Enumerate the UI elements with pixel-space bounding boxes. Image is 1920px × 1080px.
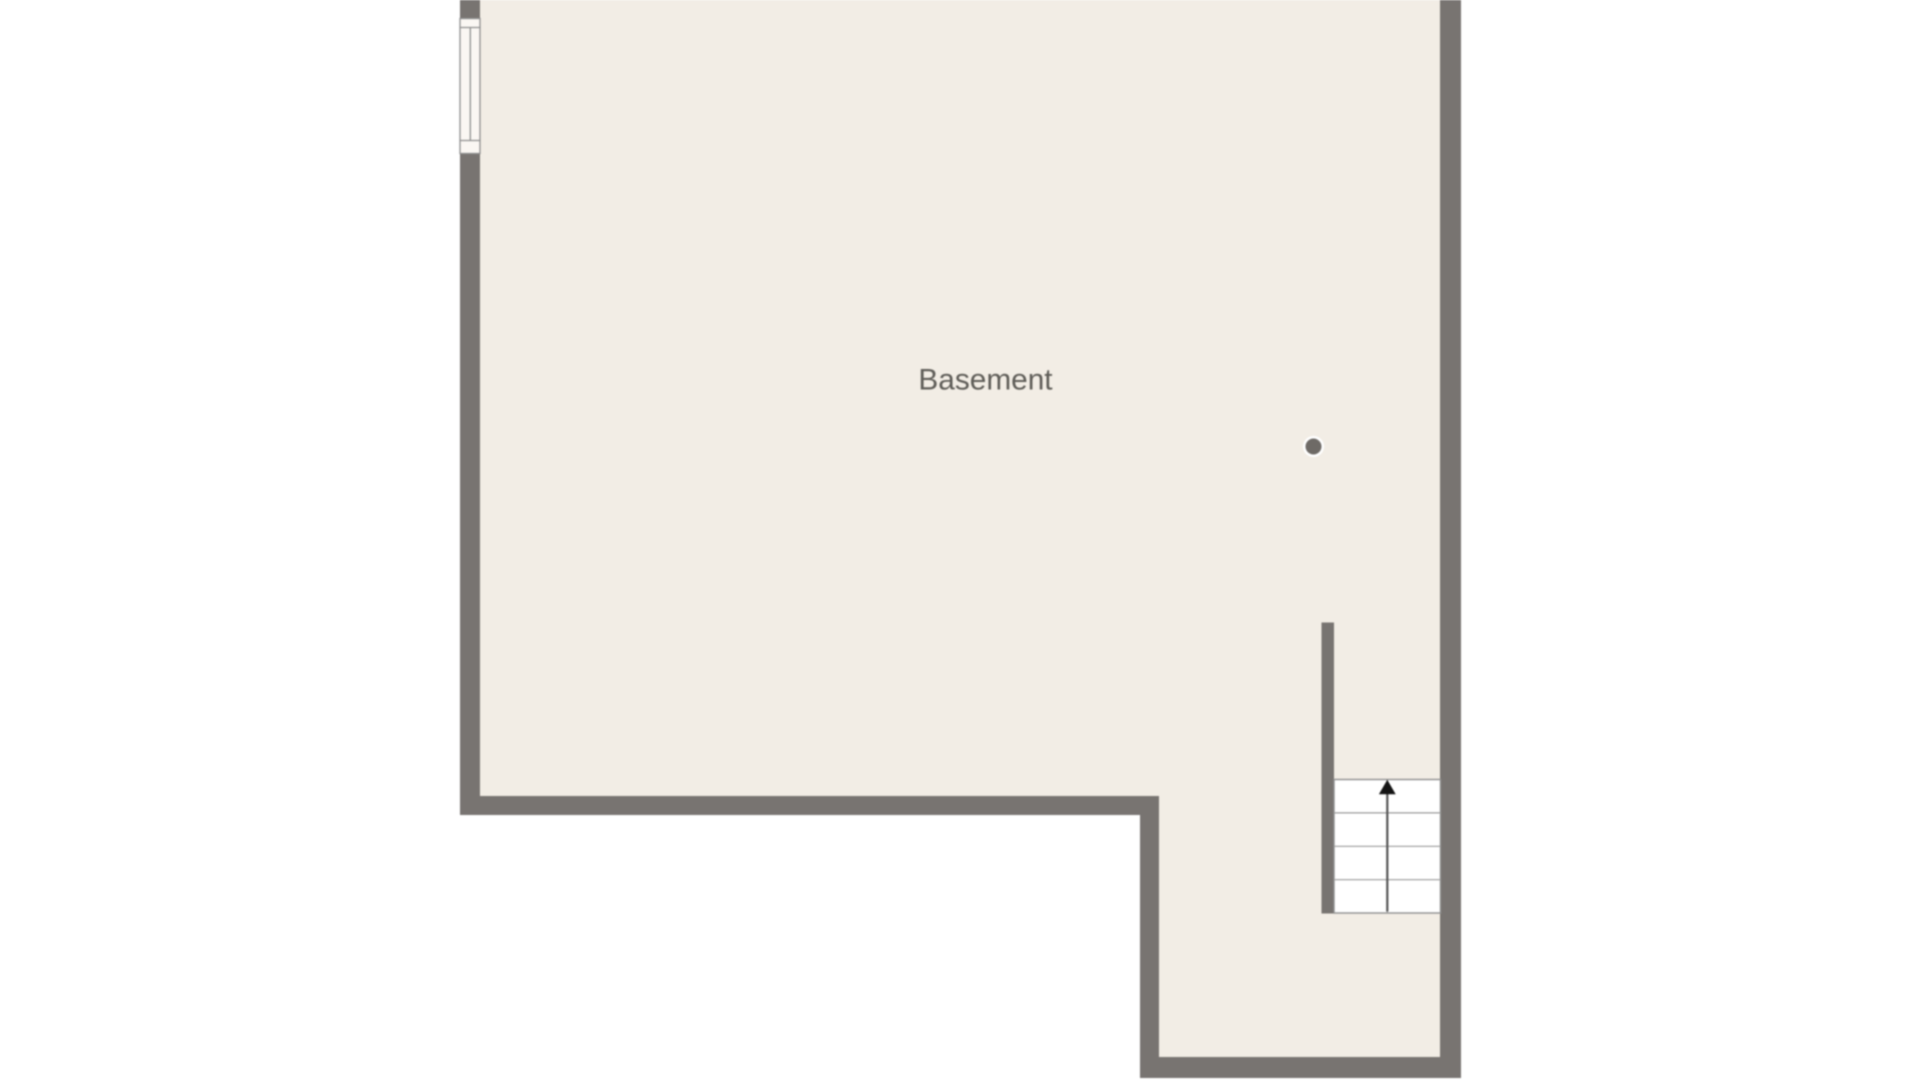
svg-text:Basement: Basement — [918, 364, 1053, 397]
